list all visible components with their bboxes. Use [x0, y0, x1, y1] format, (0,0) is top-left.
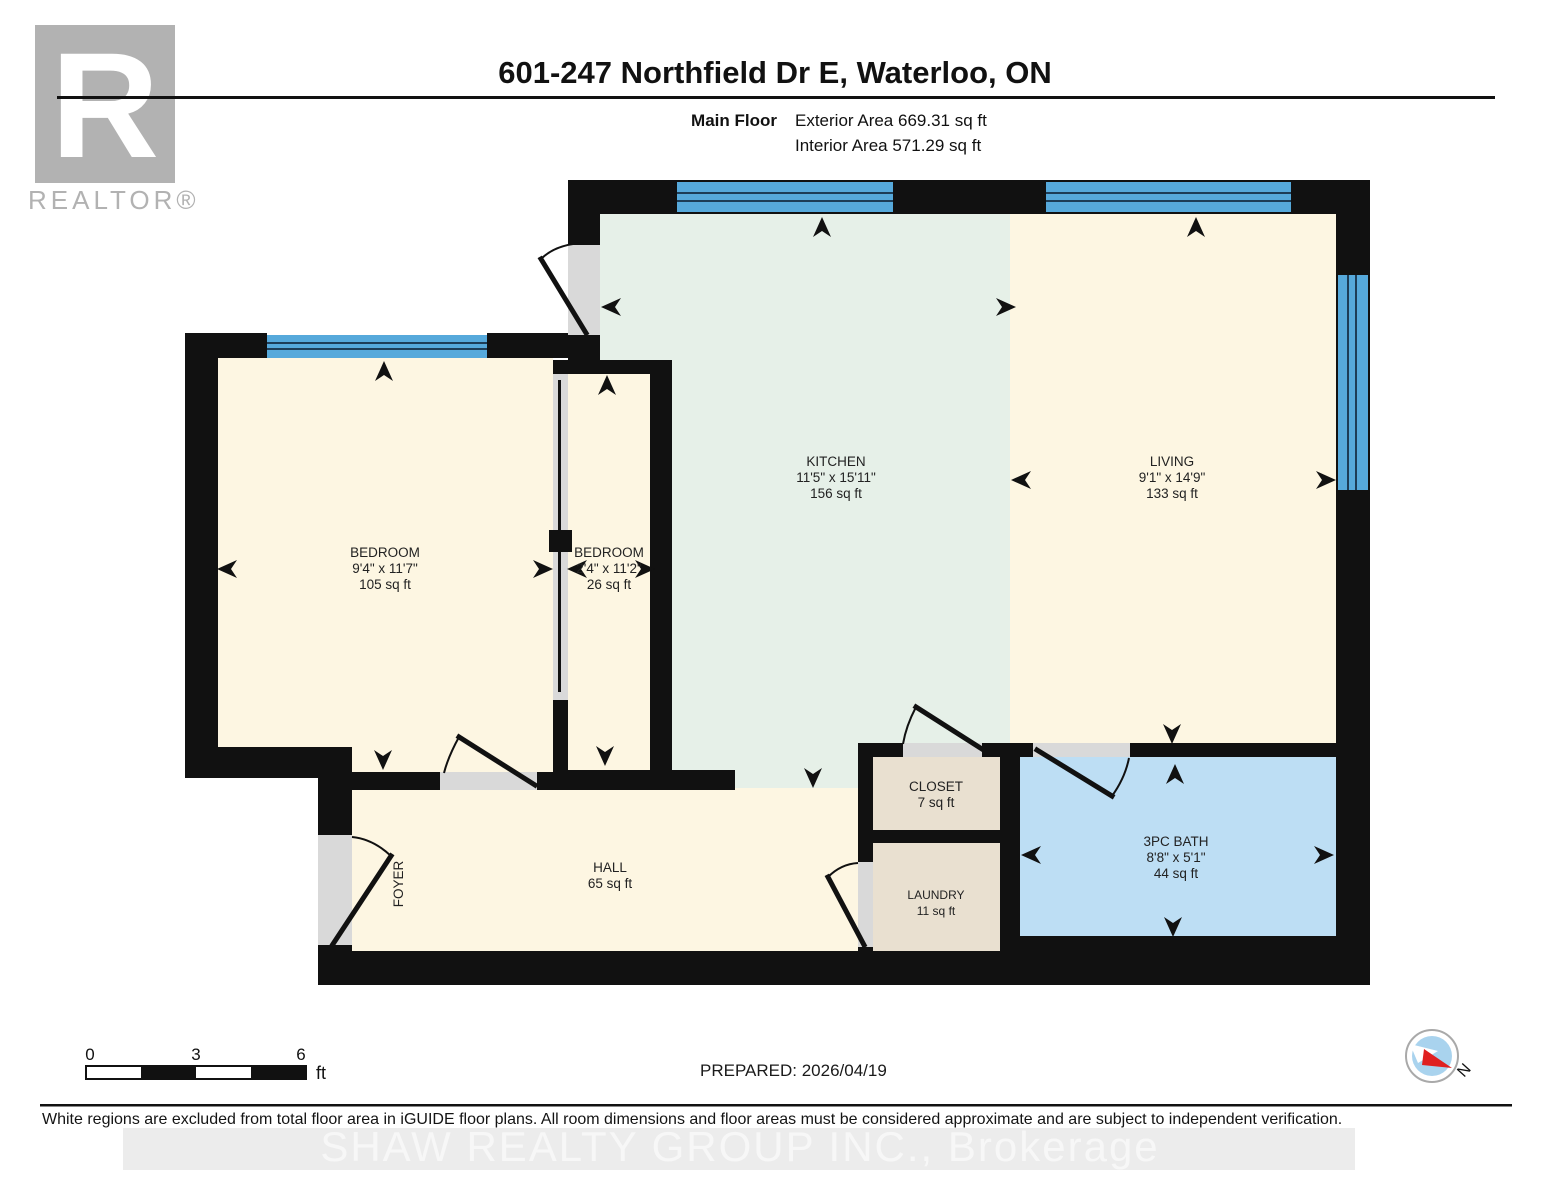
kitchen-area: 156 sq ft: [810, 486, 862, 501]
closet-door-opening: [903, 743, 982, 757]
wall-segment: [553, 770, 735, 790]
title-rule: [57, 96, 1495, 99]
foyer-door-opening: [318, 835, 352, 945]
wall-segment: [185, 747, 352, 778]
scale-tick-6: 6: [296, 1045, 305, 1064]
footer-rule: [40, 1104, 1512, 1107]
bedroom2-label: BEDROOM: [574, 545, 644, 560]
wall-segment: [568, 180, 600, 245]
bedroom1-area: 105 sq ft: [359, 577, 411, 592]
wall-segment: [487, 333, 570, 358]
wall-segment: [858, 743, 873, 862]
laundry-label: LAUNDRY: [907, 888, 964, 902]
wall-segment: [858, 830, 1020, 843]
hall-area: 65 sq ft: [588, 876, 633, 891]
bedroom1-window: [267, 335, 487, 358]
kitchen-label: KITCHEN: [806, 454, 865, 469]
floor-plan-canvas: R REALTOR® 601-247 Northfield Dr E, Wate…: [0, 0, 1553, 1200]
bedroom2-area: 26 sq ft: [587, 577, 632, 592]
kitchen-dims: 11'5" x 15'11": [796, 470, 876, 485]
wall-segment: [1000, 743, 1020, 951]
living-label: LIVING: [1150, 454, 1194, 469]
wall-segment: [553, 700, 568, 772]
scale-tick-3: 3: [191, 1045, 200, 1064]
scale-unit: ft: [316, 1063, 326, 1083]
scale-bar-segment: [251, 1066, 306, 1079]
floor-label: Main Floor: [691, 111, 777, 130]
wall-segment: [650, 360, 672, 772]
hall-label: HALL: [593, 860, 627, 875]
wall-segment: [352, 772, 440, 790]
exterior-area-text: Exterior Area 669.31 sq ft: [795, 111, 987, 130]
closet-area: 7 sq ft: [918, 795, 955, 810]
page-title: 601-247 Northfield Dr E, Waterloo, ON: [498, 55, 1052, 90]
living-area: 133 sq ft: [1146, 486, 1198, 501]
wall-segment: [858, 743, 903, 757]
realtor-logo-r-icon: R: [51, 21, 159, 189]
interior-area-text: Interior Area 571.29 sq ft: [795, 136, 981, 155]
wall-segment: [185, 333, 218, 778]
wall-segment: [1130, 743, 1336, 757]
wall-segment: [318, 951, 1370, 985]
bath-label: 3PC BATH: [1143, 834, 1208, 849]
kitchen-window: [677, 182, 893, 212]
bath-dims: 8'8" x 5'1": [1146, 850, 1205, 865]
brokerage-watermark: SHAW REALTY GROUP INC., Brokerage: [320, 1123, 1159, 1170]
bedroom1-dims: 9'4" x 11'7": [352, 561, 418, 576]
laundry-area: 11 sq ft: [917, 904, 956, 918]
foyer-label: FOYER: [391, 861, 406, 908]
sliding-door-stop: [549, 530, 572, 552]
floor-plan-page: R REALTOR® 601-247 Northfield Dr E, Wate…: [0, 0, 1553, 1200]
realtor-logo-label: REALTOR®: [28, 185, 200, 215]
wall-segment: [318, 778, 352, 835]
entry-door-opening: [568, 245, 600, 335]
living-side-window: [1338, 275, 1368, 490]
scale-tick-0: 0: [85, 1045, 94, 1064]
bedroom2-dims: 2'4" x 11'2": [576, 561, 642, 576]
scale-bar-segment: [141, 1066, 196, 1079]
prepared-date: PREPARED: 2026/04/19: [700, 1061, 887, 1080]
wall-segment: [537, 772, 553, 790]
living-window: [1046, 182, 1291, 212]
wall-segment: [1020, 936, 1336, 951]
closet-label: CLOSET: [909, 779, 963, 794]
bath-area: 44 sq ft: [1154, 866, 1199, 881]
living-dims: 9'1" x 14'9": [1139, 470, 1206, 485]
bedroom1-label: BEDROOM: [350, 545, 420, 560]
wall-segment: [318, 945, 352, 985]
